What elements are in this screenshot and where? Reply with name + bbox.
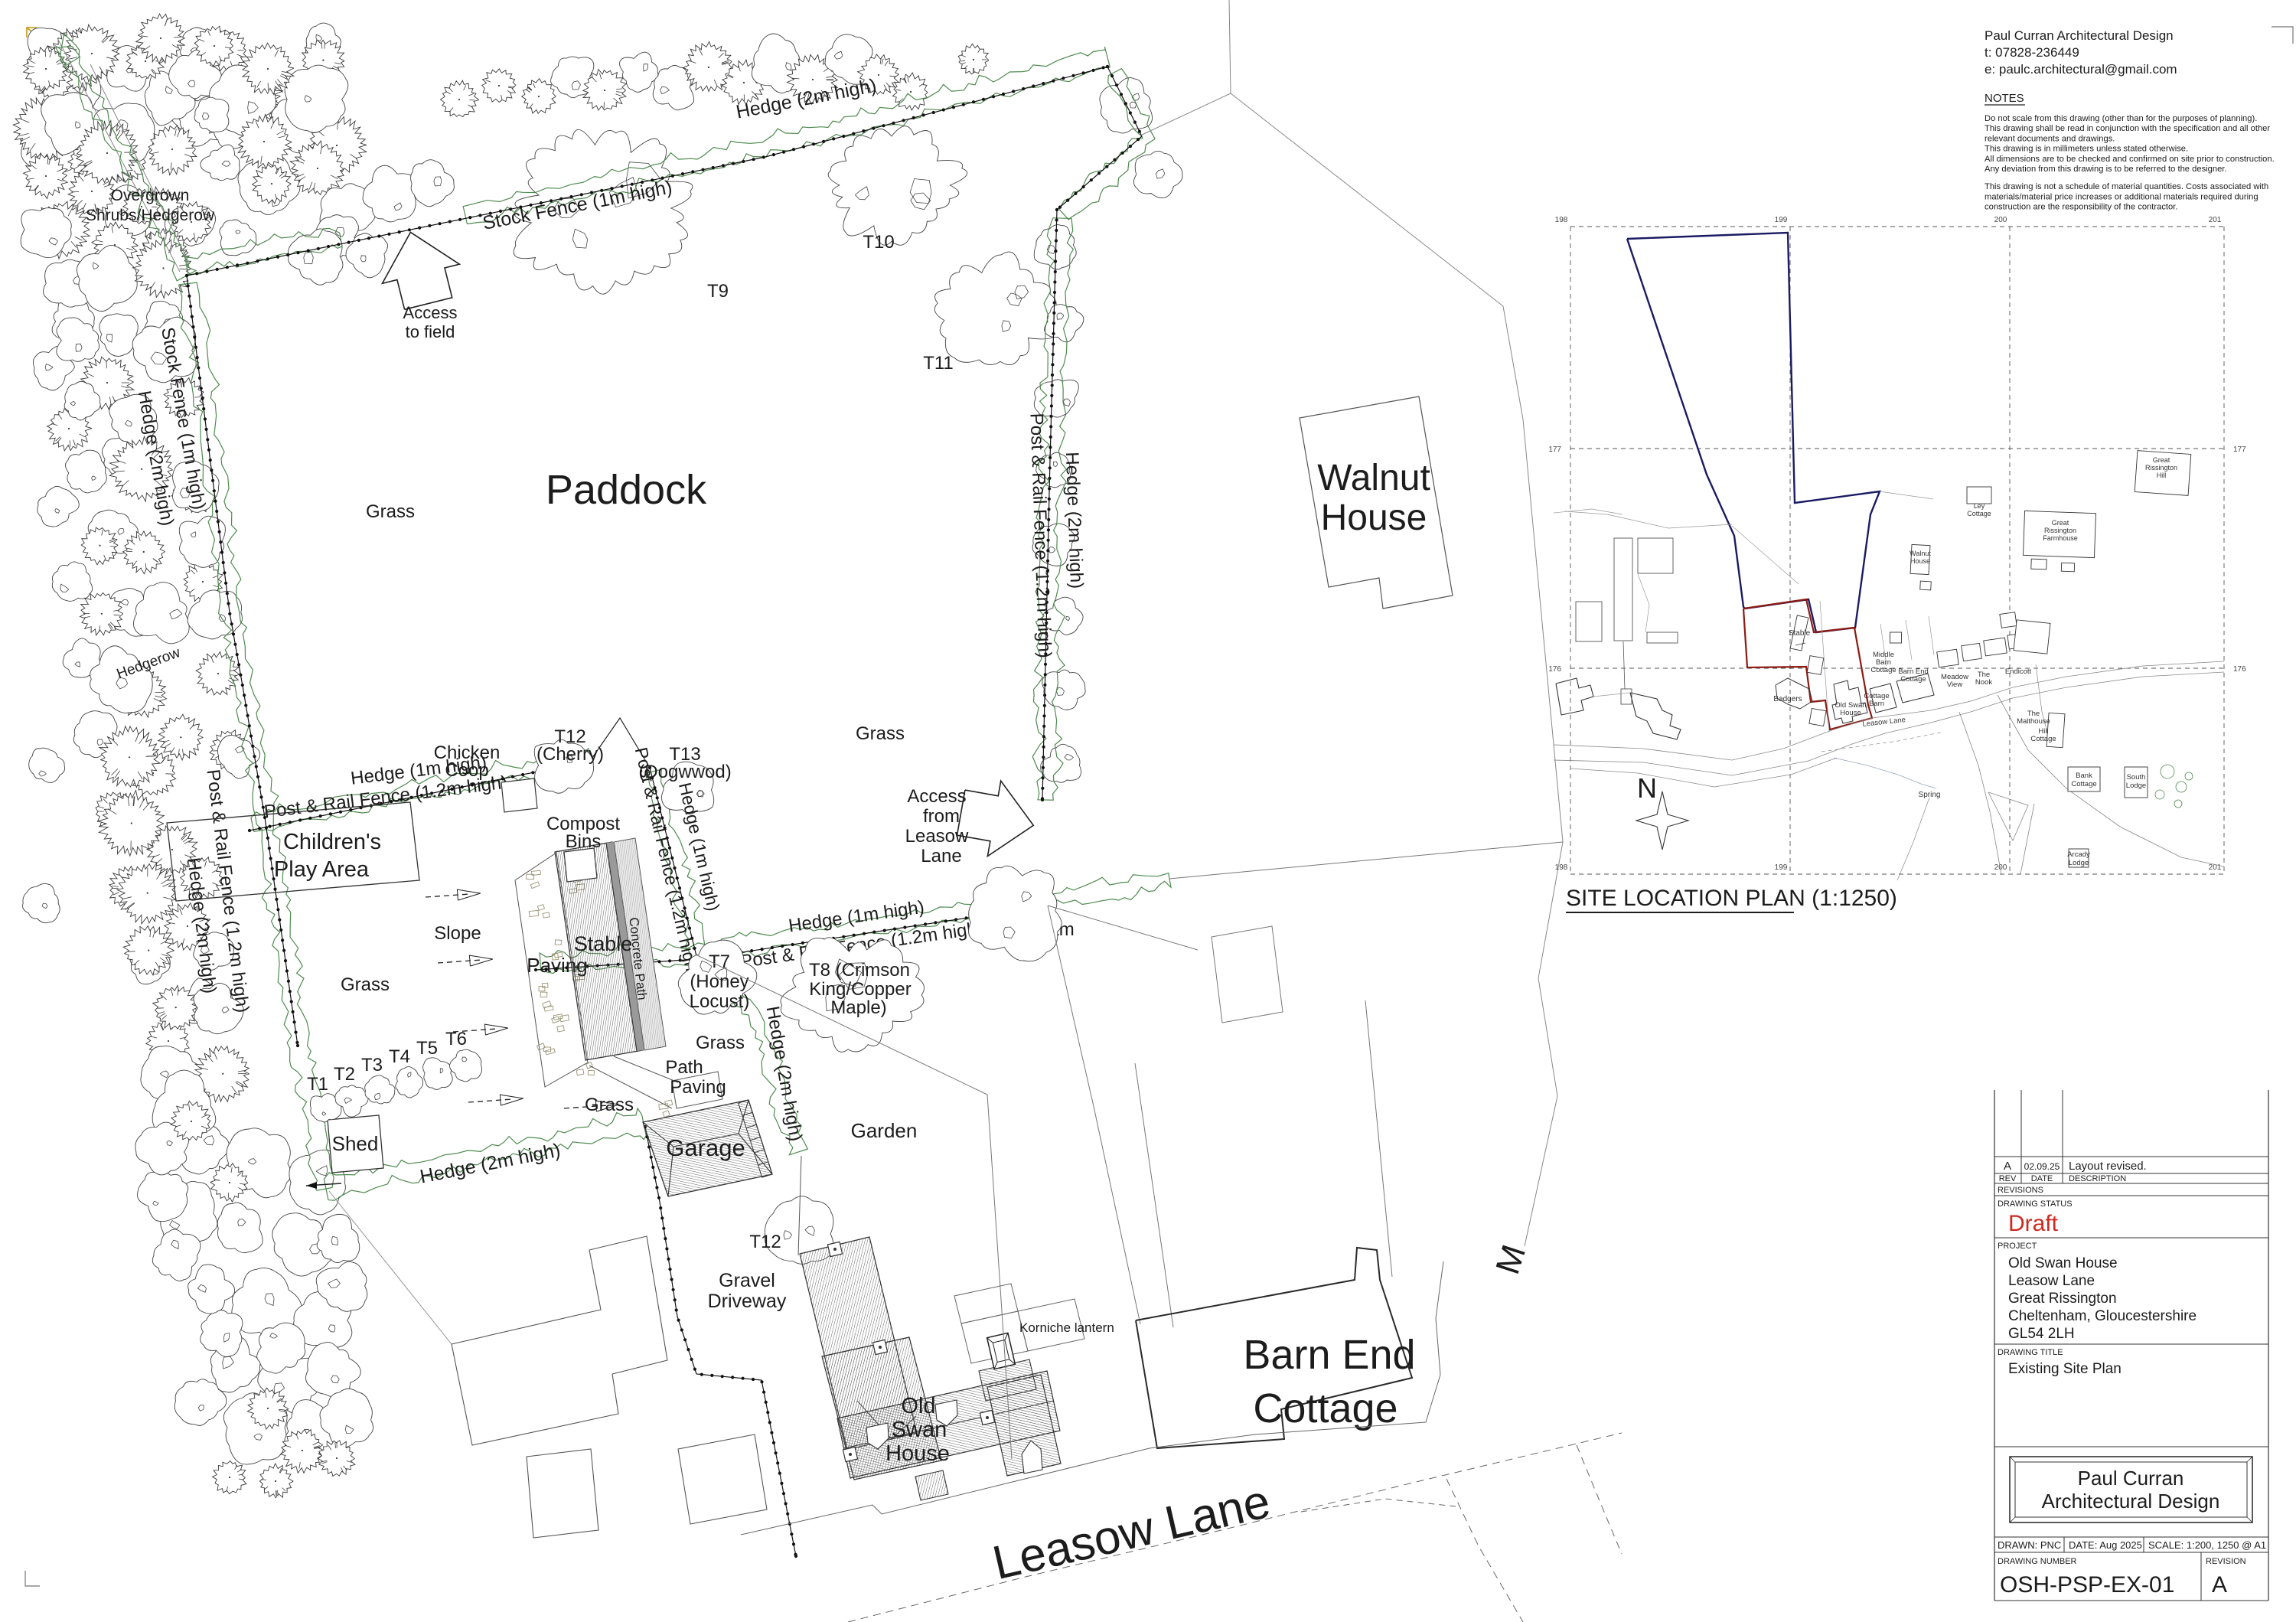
svg-text:Spring: Spring xyxy=(1919,791,1941,799)
svg-text:Endicott: Endicott xyxy=(2005,667,2032,676)
svg-text:Garage: Garage xyxy=(666,1134,745,1161)
svg-text:Stable: Stable xyxy=(574,932,633,955)
svg-text:177: 177 xyxy=(1548,445,1561,454)
svg-text:Shrubs/Hedgerow: Shrubs/Hedgerow xyxy=(86,207,215,224)
svg-text:DESCRIPTION: DESCRIPTION xyxy=(2069,1174,2126,1183)
svg-text:Old Swan House: Old Swan House xyxy=(2008,1255,2118,1271)
svg-text:Leasow Lane: Leasow Lane xyxy=(2008,1273,2095,1289)
svg-text:Grass: Grass xyxy=(696,1033,745,1053)
svg-text:Architectural Design: Architectural Design xyxy=(2042,1490,2220,1513)
svg-text:Walnut: Walnut xyxy=(1317,458,1430,498)
svg-text:Bins: Bins xyxy=(566,831,602,852)
svg-text:Cottage: Cottage xyxy=(2030,735,2056,743)
svg-text:Access: Access xyxy=(403,303,458,322)
svg-text:Leasow: Leasow xyxy=(905,826,969,847)
svg-text:Barn: Barn xyxy=(1869,700,1884,708)
svg-text:176: 176 xyxy=(1548,665,1561,674)
svg-text:Korniche lantern: Korniche lantern xyxy=(1019,1320,1114,1335)
svg-text:South: South xyxy=(2127,773,2146,782)
svg-text:DATE: Aug 2025: DATE: Aug 2025 xyxy=(2069,1539,2142,1551)
svg-text:198: 198 xyxy=(1555,863,1568,872)
svg-text:Grass: Grass xyxy=(366,501,415,522)
svg-text:Bank: Bank xyxy=(2076,772,2092,780)
svg-text:199: 199 xyxy=(1775,863,1788,872)
svg-text:Garden: Garden xyxy=(851,1119,918,1142)
svg-text:Old: Old xyxy=(901,1394,935,1418)
svg-text:201: 201 xyxy=(2209,216,2222,224)
svg-text:e: paulc.architectural@gmail.c: e: paulc.architectural@gmail.com xyxy=(1985,62,2177,77)
svg-text:Hill: Hill xyxy=(2157,472,2167,479)
svg-text:T4: T4 xyxy=(389,1046,410,1067)
svg-text:A: A xyxy=(2212,1572,2227,1598)
svg-text:T1: T1 xyxy=(307,1074,328,1095)
svg-text:(Honey: (Honey xyxy=(690,971,748,992)
svg-text:199: 199 xyxy=(1775,216,1788,224)
svg-text:Cottage: Cottage xyxy=(1870,666,1896,674)
svg-text:construction are the responsib: construction are the responsibility of t… xyxy=(1985,203,2177,212)
svg-text:GL54 2LH: GL54 2LH xyxy=(2008,1326,2075,1342)
svg-text:Access: Access xyxy=(907,786,966,807)
svg-text:Cottage: Cottage xyxy=(1253,1385,1397,1431)
svg-text:Slope: Slope xyxy=(434,923,481,944)
svg-text:T11: T11 xyxy=(923,353,954,374)
svg-text:from: from xyxy=(923,806,960,827)
svg-text:House: House xyxy=(1910,557,1930,565)
svg-text:T5: T5 xyxy=(416,1038,438,1059)
svg-text:02.09.25: 02.09.25 xyxy=(2024,1161,2060,1172)
svg-text:A: A xyxy=(2004,1160,2011,1173)
svg-text:to field: to field xyxy=(406,322,455,341)
svg-text:REVISIONS: REVISIONS xyxy=(1998,1186,2043,1195)
svg-text:198: 198 xyxy=(1555,216,1568,224)
svg-text:Badgers: Badgers xyxy=(1773,695,1802,703)
svg-text:Cheltenham, Gloucestershire: Cheltenham, Gloucestershire xyxy=(2008,1308,2197,1324)
svg-text:t: 07828-236449: t: 07828-236449 xyxy=(1985,45,2079,60)
svg-text:Malthouse: Malthouse xyxy=(2017,717,2050,726)
svg-text:Lodge: Lodge xyxy=(2126,782,2146,790)
svg-text:Shed: Shed xyxy=(332,1132,379,1155)
svg-text:Grass: Grass xyxy=(341,974,390,995)
svg-text:DRAWING STATUS: DRAWING STATUS xyxy=(1998,1199,2073,1209)
svg-text:REV: REV xyxy=(1999,1174,2017,1183)
svg-text:Cottage: Cottage xyxy=(1900,675,1926,684)
svg-text:Layout revised.: Layout revised. xyxy=(2069,1160,2147,1173)
svg-text:This drawing is in millimeters: This drawing is in millimeters unless st… xyxy=(1985,145,2188,154)
svg-text:N: N xyxy=(1637,772,1657,804)
svg-text:T3: T3 xyxy=(361,1055,383,1075)
svg-text:Ley: Ley xyxy=(1974,502,1985,510)
svg-text:Great: Great xyxy=(2153,456,2170,464)
svg-text:T6: T6 xyxy=(445,1029,467,1049)
svg-text:Swan: Swan xyxy=(892,1418,947,1442)
svg-text:View: View xyxy=(1947,680,1963,689)
svg-text:SCALE: 1:200, 1250 @ A1: SCALE: 1:200, 1250 @ A1 xyxy=(2148,1539,2266,1551)
svg-text:relevant documents and drawing: relevant documents and drawings. xyxy=(1985,134,2115,143)
svg-text:Path: Path xyxy=(665,1057,703,1078)
svg-text:Overgrown: Overgrown xyxy=(111,187,190,204)
svg-text:Great: Great xyxy=(2052,519,2069,527)
svg-text:Rissington: Rissington xyxy=(2145,464,2177,472)
svg-text:Paving: Paving xyxy=(670,1077,726,1098)
svg-text:T12: T12 xyxy=(749,1232,781,1252)
svg-text:OSH-PSP-EX-01: OSH-PSP-EX-01 xyxy=(2000,1572,2174,1598)
svg-text:T7: T7 xyxy=(709,951,730,972)
svg-text:Driveway: Driveway xyxy=(708,1291,787,1312)
svg-text:House: House xyxy=(1840,709,1861,717)
svg-text:Arcady: Arcady xyxy=(2067,850,2090,859)
svg-text:Draft: Draft xyxy=(2008,1211,2059,1236)
svg-text:Paul Curran: Paul Curran xyxy=(2078,1467,2184,1490)
svg-text:(Cherry): (Cherry) xyxy=(536,744,604,765)
svg-text:REVISION: REVISION xyxy=(2206,1557,2246,1566)
svg-text:Nook: Nook xyxy=(1975,678,1992,687)
svg-text:Grass: Grass xyxy=(585,1095,634,1115)
svg-text:Grass: Grass xyxy=(856,723,905,744)
svg-text:Paul Curran Architectural Desi: Paul Curran Architectural Design xyxy=(1985,28,2174,43)
svg-text:Rissington: Rissington xyxy=(2044,527,2076,534)
svg-text:materials/material price incre: materials/material price increases or ad… xyxy=(1985,192,2258,201)
svg-text:PROJECT: PROJECT xyxy=(1998,1242,2037,1251)
svg-text:King/Copper: King/Copper xyxy=(809,979,911,1000)
svg-text:DATE: DATE xyxy=(2031,1174,2053,1183)
svg-text:Paddock: Paddock xyxy=(546,467,707,513)
svg-text:Cottage: Cottage xyxy=(2071,780,2096,788)
svg-text:DRAWING TITLE: DRAWING TITLE xyxy=(1998,1348,2063,1357)
svg-text:Walnut: Walnut xyxy=(1910,550,1931,557)
svg-text:Maple): Maple) xyxy=(830,997,886,1018)
svg-text:Coop: Coop xyxy=(445,760,488,781)
svg-text:Do not scale from this drawing: Do not scale from this drawing (other th… xyxy=(1985,114,2257,123)
svg-text:Lane: Lane xyxy=(921,846,961,866)
svg-text:Great Rissington: Great Rissington xyxy=(2008,1291,2117,1307)
svg-text:Existing Site Plan: Existing Site Plan xyxy=(2008,1361,2122,1377)
svg-text:Cottage: Cottage xyxy=(1967,510,1991,517)
svg-text:Farmhouse: Farmhouse xyxy=(2043,534,2078,542)
svg-text:T9: T9 xyxy=(707,281,729,302)
svg-text:T2: T2 xyxy=(334,1064,355,1085)
svg-text:This drawing shall be read in: This drawing shall be read in conjunctio… xyxy=(1985,124,2270,133)
svg-text:T10: T10 xyxy=(863,232,894,253)
svg-text:176: 176 xyxy=(2233,665,2246,674)
svg-text:SITE LOCATION PLAN (1:1250): SITE LOCATION PLAN (1:1250) xyxy=(1566,886,1897,911)
svg-text:T8 (Crimson: T8 (Crimson xyxy=(809,960,910,981)
svg-text:DRAWING NUMBER: DRAWING NUMBER xyxy=(1998,1557,2077,1566)
svg-text:(Dogwwod): (Dogwwod) xyxy=(638,762,731,782)
svg-text:200: 200 xyxy=(1994,216,2007,224)
svg-text:House: House xyxy=(885,1441,950,1466)
svg-text:177: 177 xyxy=(2233,445,2246,454)
svg-text:All dimensions are to be check: All dimensions are to be checked and con… xyxy=(1985,155,2275,164)
svg-text:This drawing is not a schedule: This drawing is not a schedule of materi… xyxy=(1985,182,2268,191)
svg-text:Gravel: Gravel xyxy=(719,1270,775,1291)
svg-text:Any deviation from this drawin: Any deviation from this drawing is to be… xyxy=(1985,165,2227,174)
svg-text:Barn End: Barn End xyxy=(1243,1332,1415,1378)
svg-text:Children's: Children's xyxy=(283,830,381,854)
svg-text:NOTES: NOTES xyxy=(1985,92,2024,105)
svg-text:DRAWN: PNC: DRAWN: PNC xyxy=(1998,1539,2061,1551)
svg-text:Locust): Locust) xyxy=(690,991,750,1012)
svg-text:Lodge: Lodge xyxy=(2069,859,2089,867)
svg-text:House: House xyxy=(1321,498,1427,538)
svg-text:Play Area: Play Area xyxy=(274,857,370,882)
svg-text:Stable: Stable xyxy=(1789,629,1811,638)
